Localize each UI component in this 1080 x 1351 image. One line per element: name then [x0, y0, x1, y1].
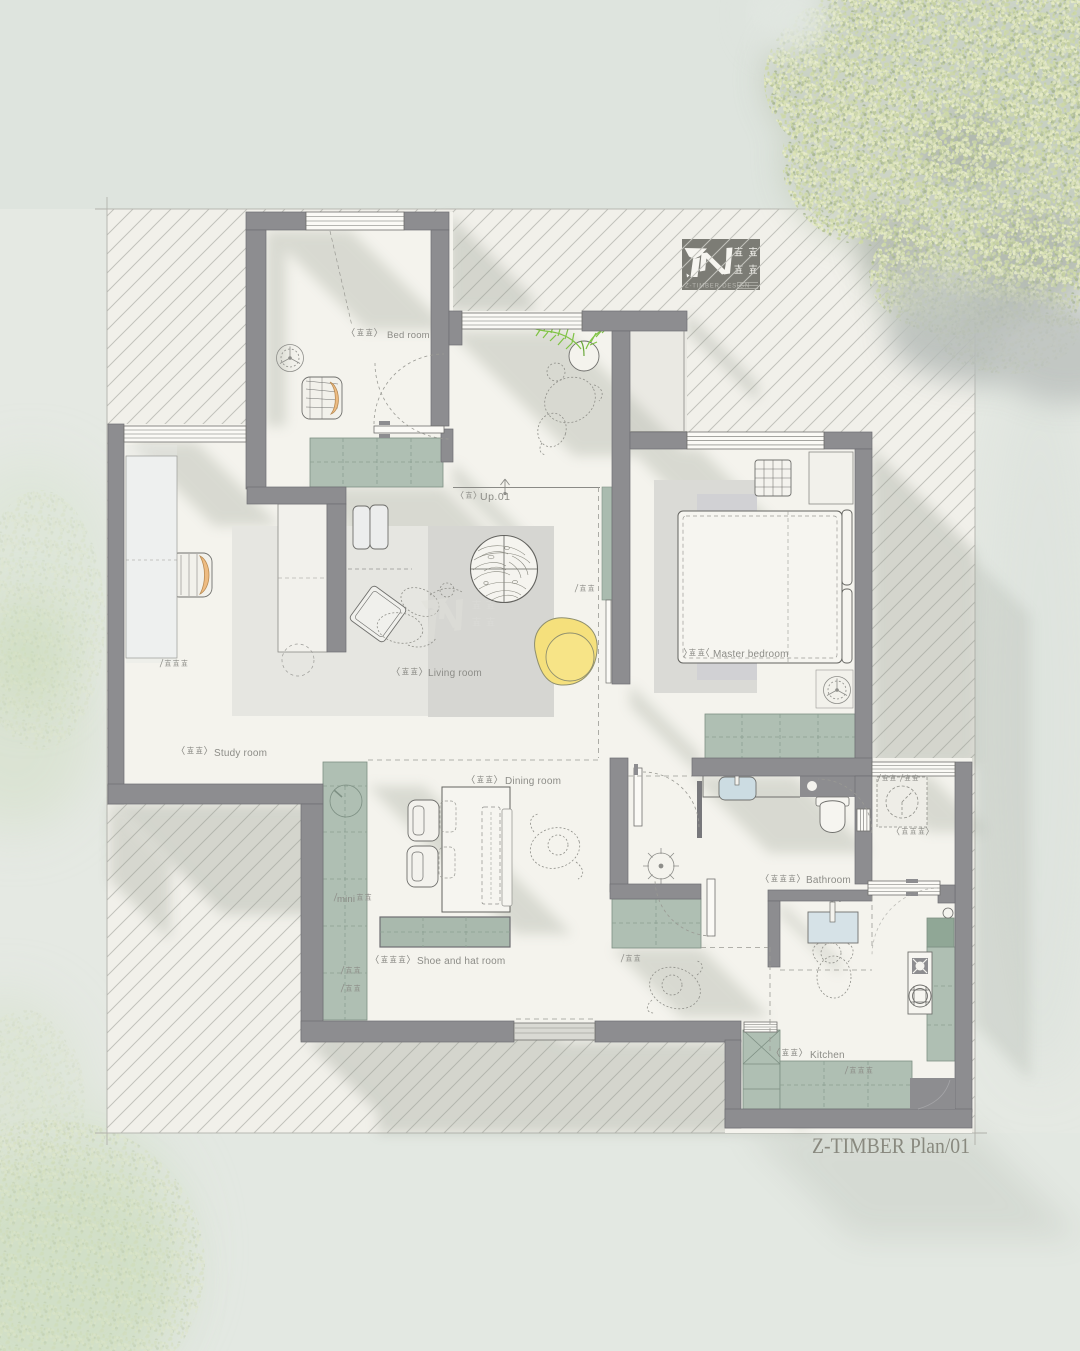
svg-text:Bed room: Bed room	[387, 330, 430, 341]
svg-text:Study room: Study room	[214, 748, 267, 759]
svg-text:Master bedroom: Master bedroom	[713, 649, 789, 660]
svg-text:Z-TIMBER Plan/01: Z-TIMBER Plan/01	[812, 1133, 970, 1158]
svg-text:Up.01: Up.01	[480, 491, 511, 503]
svg-text:Bathroom: Bathroom	[806, 875, 851, 886]
svg-text:mini: mini	[337, 894, 355, 905]
svg-text:Living room: Living room	[428, 668, 482, 679]
svg-text:Dining room: Dining room	[505, 776, 561, 787]
svg-text:Shoe and hat room: Shoe and hat room	[417, 956, 505, 967]
svg-text:Kitchen: Kitchen	[810, 1050, 845, 1061]
